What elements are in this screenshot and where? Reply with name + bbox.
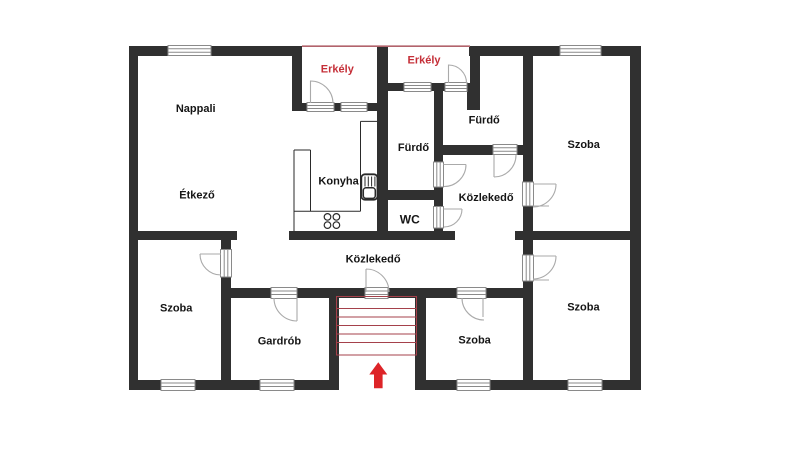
svg-text:Konyha: Konyha (318, 175, 359, 187)
svg-text:Közlekedő: Közlekedő (346, 253, 401, 265)
svg-text:Szoba: Szoba (567, 302, 600, 314)
svg-text:Fürdő: Fürdő (398, 142, 429, 154)
svg-text:Erkély: Erkély (407, 55, 441, 67)
svg-text:Fürdő: Fürdő (469, 114, 500, 126)
svg-text:Szoba: Szoba (458, 335, 491, 347)
svg-text:Étkező: Étkező (179, 189, 215, 202)
svg-text:WC: WC (400, 212, 420, 226)
svg-text:Erkély: Erkély (321, 64, 355, 76)
svg-text:Nappali: Nappali (176, 103, 216, 115)
svg-text:Szoba: Szoba (160, 302, 193, 314)
svg-text:Gardrób: Gardrób (258, 335, 302, 347)
svg-text:Közlekedő: Közlekedő (459, 192, 514, 204)
svg-text:Szoba: Szoba (567, 139, 600, 151)
